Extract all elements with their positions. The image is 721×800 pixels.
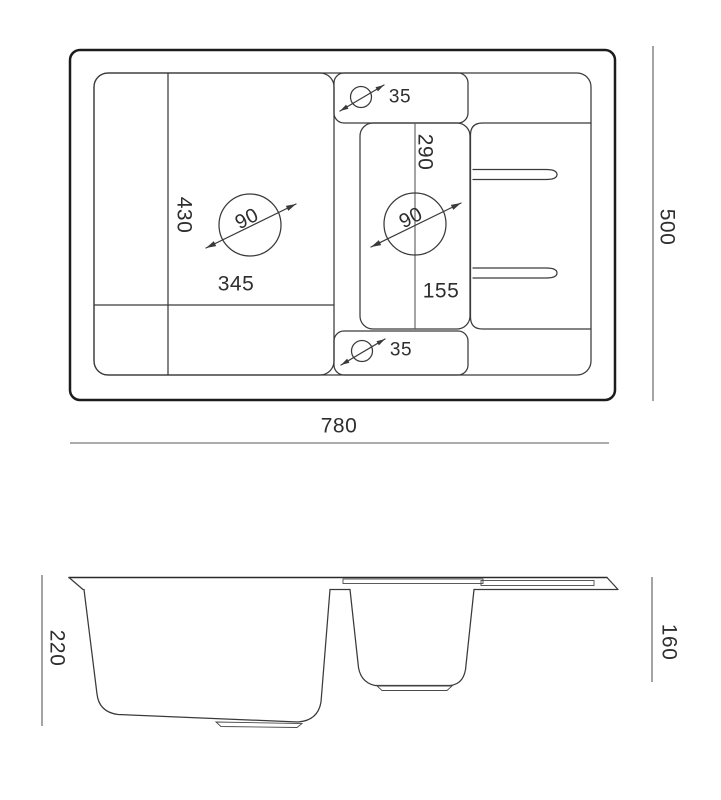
arrowhead bbox=[286, 204, 296, 211]
hole-diameter-label-top: 35 bbox=[389, 88, 411, 107]
arrowhead bbox=[206, 241, 216, 248]
drainer-groove-bottom bbox=[473, 268, 557, 278]
arrowhead bbox=[340, 105, 349, 111]
tap-hole-bottom-circle bbox=[352, 341, 373, 362]
dim-label-small-bowl-length: 290 bbox=[415, 134, 436, 171]
dim-label-small-bowl-depth: 160 bbox=[659, 624, 680, 661]
dim-label-main-bowl-length: 430 bbox=[174, 197, 195, 234]
hole-diameter-label-bottom: 35 bbox=[390, 341, 412, 360]
dim-label-main-bowl-width: 345 bbox=[218, 274, 255, 295]
sink-technical-drawing: 430 345 90 35 290 90 155 35 500 780 220 … bbox=[0, 0, 721, 800]
sink-drawing-linework bbox=[0, 0, 721, 800]
arrowhead bbox=[371, 240, 381, 247]
sink-outer-edge bbox=[70, 50, 615, 400]
main-bowl-outline bbox=[94, 73, 334, 375]
sink-top-view bbox=[70, 46, 653, 443]
small-bowl-profile bbox=[350, 590, 474, 686]
dim-label-overall-depth: 500 bbox=[657, 209, 678, 246]
deck-ledge-line-left bbox=[343, 579, 483, 584]
arrowhead bbox=[341, 359, 350, 365]
arrowhead bbox=[451, 203, 461, 210]
dim-label-main-bowl-depth: 220 bbox=[47, 630, 68, 667]
dim-label-small-bowl-width: 155 bbox=[423, 281, 460, 302]
drainer-groove-top bbox=[473, 170, 557, 180]
tap-hole-top-circle bbox=[351, 87, 372, 108]
arrowhead bbox=[377, 339, 386, 345]
dim-label-overall-width: 780 bbox=[321, 416, 358, 437]
sink-side-view bbox=[42, 575, 652, 728]
small-bowl-drain-boss bbox=[377, 686, 452, 691]
deck-ledge-line-right bbox=[481, 581, 594, 586]
drainer-section-outline bbox=[471, 123, 592, 329]
main-bowl-profile bbox=[84, 590, 330, 723]
main-bowl-drain-boss bbox=[216, 722, 302, 728]
arrowhead bbox=[376, 85, 385, 91]
